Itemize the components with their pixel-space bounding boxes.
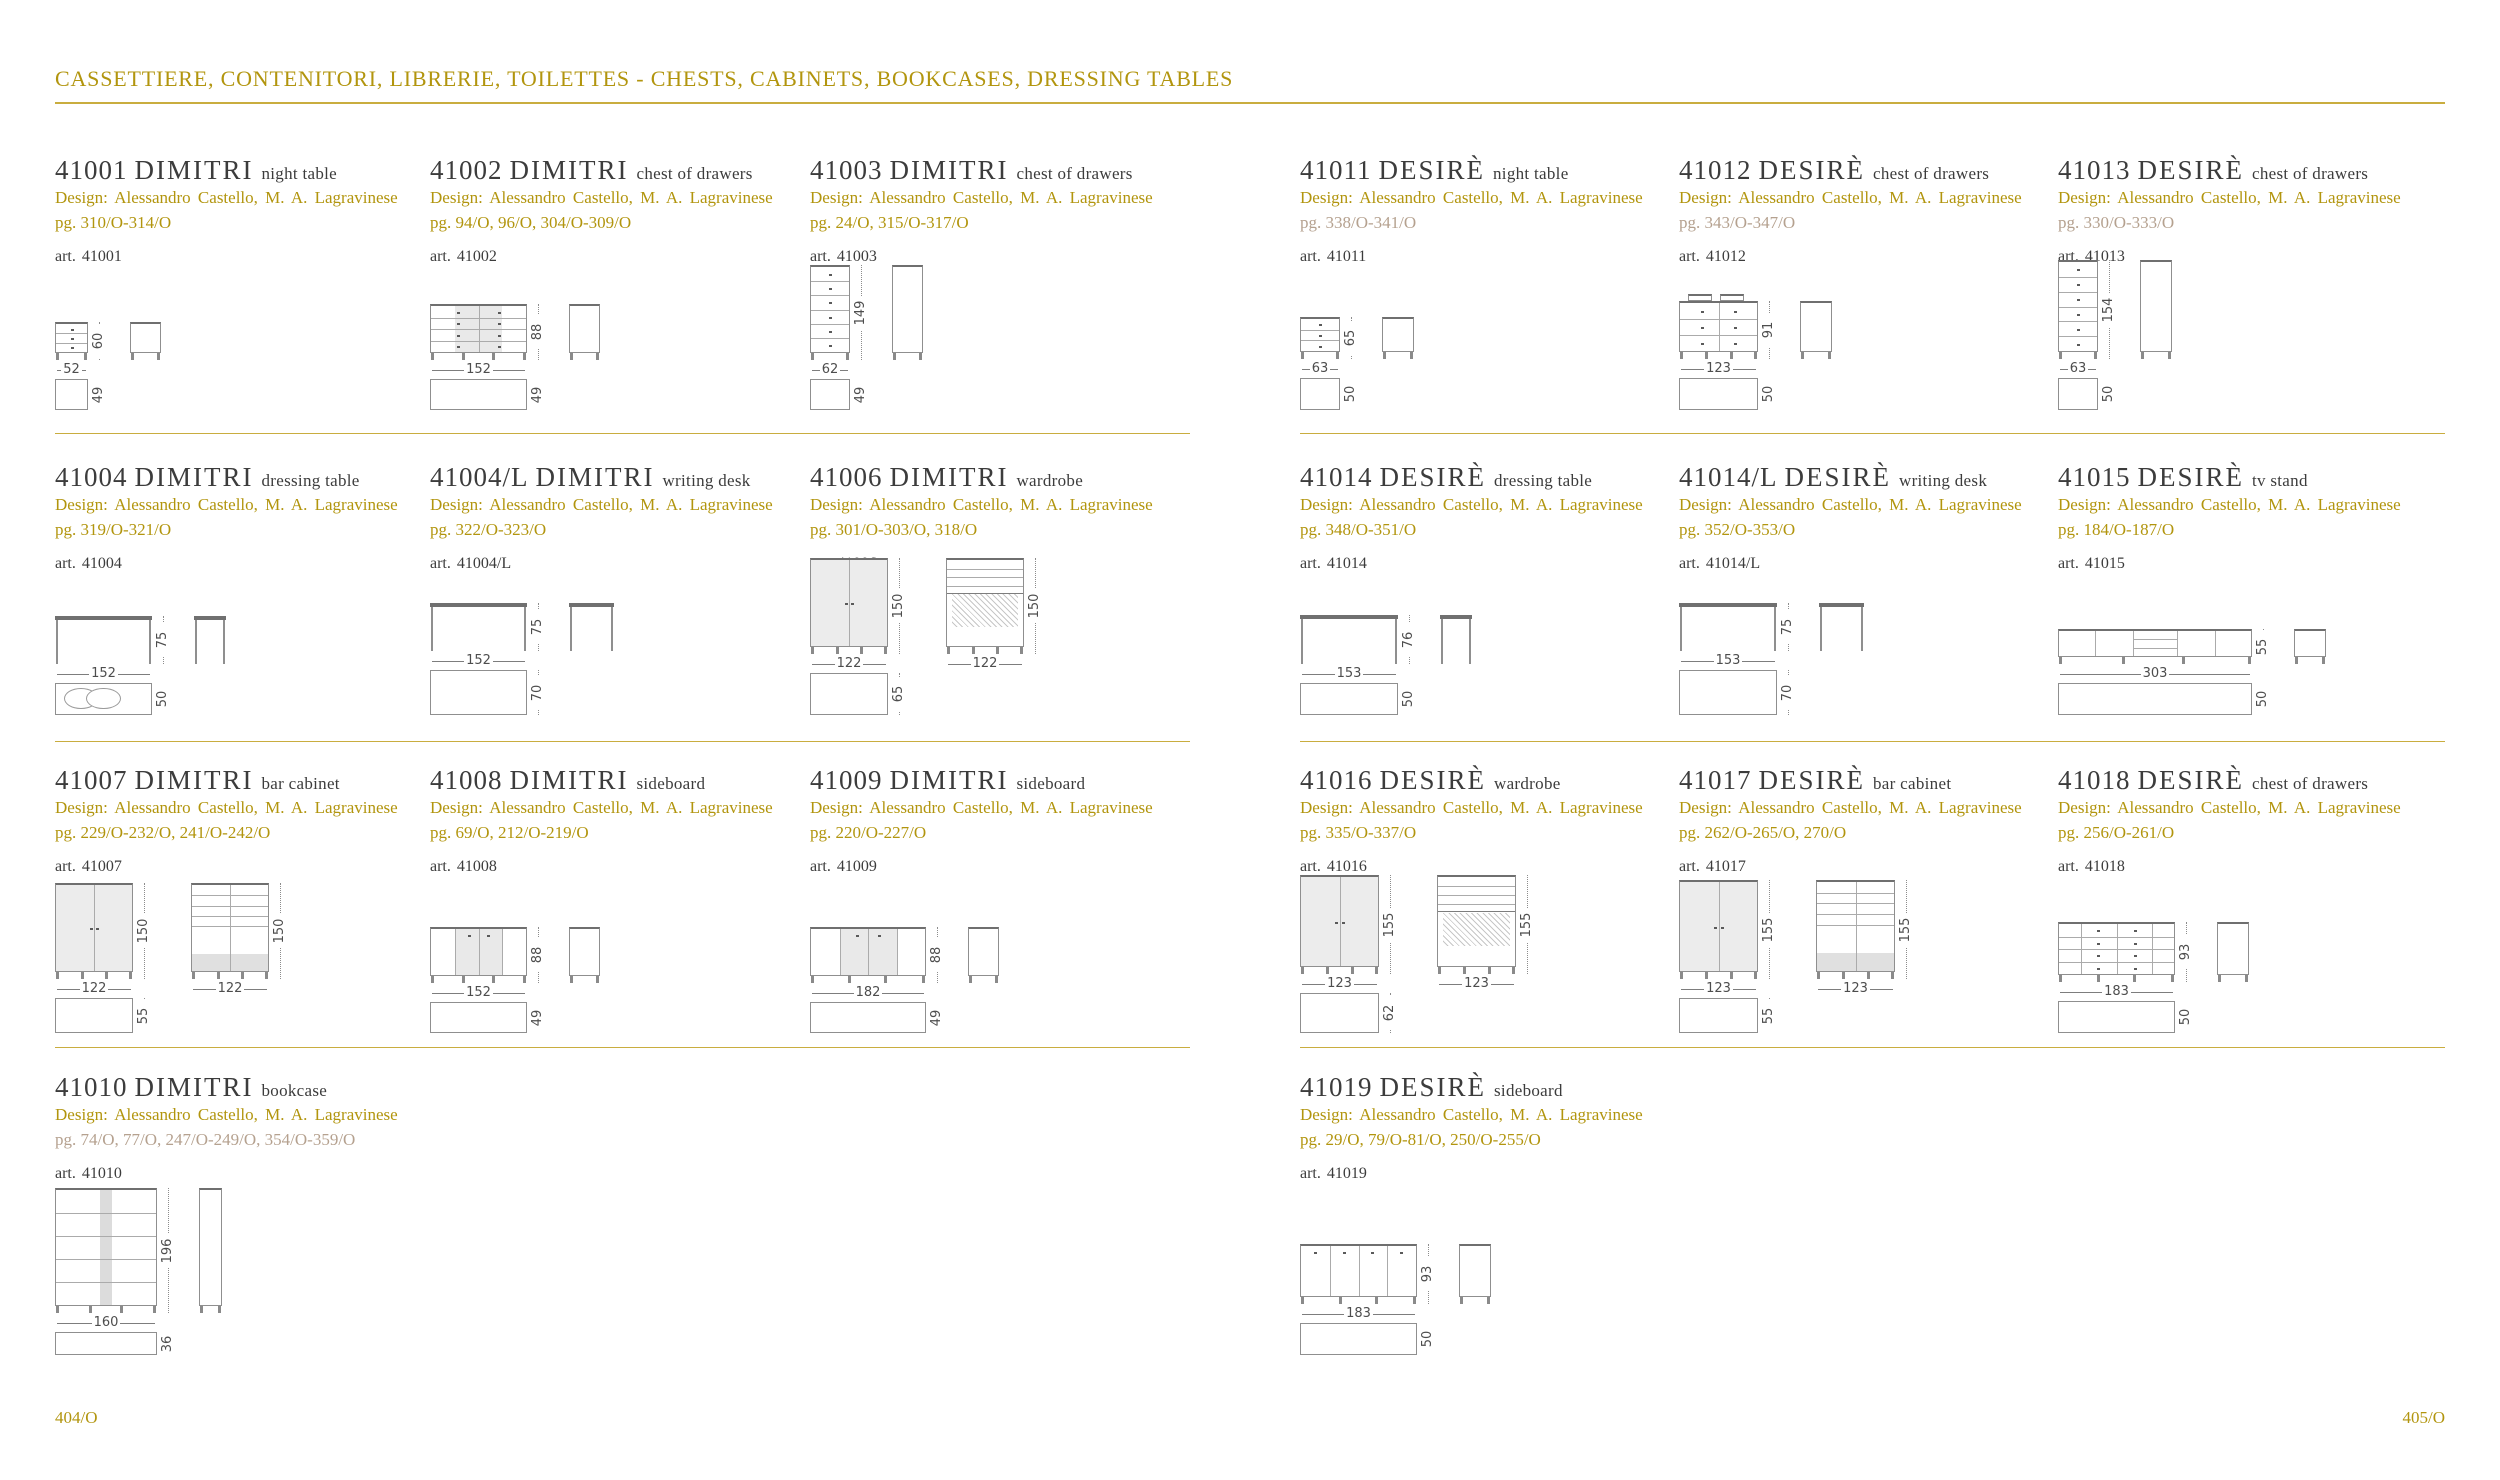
furniture-leg	[884, 647, 887, 654]
furniture-leg	[2059, 657, 2062, 664]
drawer-knob	[2077, 344, 2080, 346]
table-leg	[1469, 619, 1471, 664]
technical-drawing: 15515512312362	[1300, 733, 1645, 1033]
furniture-leg	[893, 353, 896, 360]
furniture-leg	[947, 647, 950, 654]
dim-height-label: 75	[156, 623, 170, 657]
furniture-leg	[462, 976, 465, 983]
drawer-line	[2059, 292, 2097, 293]
drawer-knob	[457, 312, 460, 314]
dim-height-label: 50	[2256, 682, 2270, 716]
drawer-line	[2059, 277, 2097, 278]
furniture-leg	[105, 972, 108, 979]
front-view	[810, 265, 850, 353]
drawer-knob	[1335, 922, 1338, 924]
divider-line	[897, 929, 898, 975]
front-view	[1679, 301, 1758, 352]
top-view	[1300, 993, 1379, 1033]
drawer-knob	[71, 329, 74, 331]
furniture-leg	[570, 976, 573, 983]
divider-line	[1719, 882, 1720, 971]
hanging-clothes	[1443, 913, 1511, 947]
furniture-leg	[811, 353, 814, 360]
drawer-line	[811, 338, 849, 339]
furniture-leg	[192, 972, 195, 979]
product-cell-41017: 41017DESIRÈbar cabinet Design: Alessandr…	[1679, 765, 2051, 1065]
dim-width-label: 122	[55, 982, 133, 996]
mirror-oval	[86, 688, 120, 709]
table-leg	[524, 607, 526, 651]
drawer-knob	[829, 345, 832, 347]
product-cell-41014-L: 41014/LDESIRÈwriting desk Design: Alessa…	[1679, 462, 2051, 762]
furniture-leg	[1680, 972, 1683, 979]
front-view	[130, 322, 161, 353]
divider-line	[94, 885, 95, 971]
dim-width-label: 123	[1679, 362, 1758, 376]
row-separator-rule	[55, 433, 1190, 434]
divider-line	[2215, 631, 2216, 656]
dim-width-label: 122	[810, 657, 888, 671]
divider-line	[1340, 877, 1341, 966]
table-leg	[1301, 619, 1303, 664]
divider-line	[479, 306, 480, 352]
dim-height-label: 93	[2179, 935, 2193, 969]
drawer-knob	[2097, 968, 2100, 970]
drawer-knob	[2134, 955, 2137, 957]
drawer-knob	[2077, 269, 2080, 271]
shelf-line	[1438, 886, 1515, 887]
dim-height-label: 155	[1383, 908, 1397, 942]
table-leg	[149, 620, 151, 664]
furniture-leg	[84, 353, 87, 360]
technical-drawing: 15015012212265	[810, 415, 1155, 715]
technical-drawing: 5530350	[2058, 415, 2403, 715]
furniture-leg	[1730, 352, 1733, 359]
table-leg	[611, 607, 613, 651]
catalog-spread: CASSETTIERE, CONTENITORI, LIBRERIE, TOIL…	[0, 0, 2500, 1480]
drawer-knob	[829, 317, 832, 319]
furniture-leg	[1463, 967, 1466, 974]
drawer-knob	[1701, 327, 1704, 329]
drawer-knob	[2097, 955, 2100, 957]
dim-width-label: 52	[55, 363, 88, 377]
table-top	[55, 616, 152, 620]
furniture-leg	[1460, 1297, 1463, 1304]
center-column	[100, 1190, 112, 1305]
furniture-leg	[218, 1306, 221, 1313]
divider-line	[1387, 1246, 1388, 1296]
technical-drawing: 8818249	[810, 733, 1155, 1033]
top-view	[1300, 683, 1398, 715]
furniture-leg	[2171, 975, 2174, 982]
furniture-leg	[1301, 967, 1304, 974]
furniture-leg	[2133, 975, 2136, 982]
drawer-knob	[1714, 927, 1717, 929]
front-view	[55, 883, 133, 972]
shelf-line	[1438, 895, 1515, 896]
drawer-knob	[829, 302, 832, 304]
drawer-line	[2059, 307, 2097, 308]
drawer-line	[2059, 937, 2174, 938]
furniture-leg	[431, 976, 434, 983]
side-view	[1819, 603, 1864, 651]
dim-height-label: 70	[531, 676, 545, 710]
furniture-leg	[848, 976, 851, 983]
top-view	[55, 1332, 157, 1355]
drawer-line	[56, 343, 87, 344]
front-view	[1382, 317, 1414, 352]
page-number-left: 404/O	[55, 1408, 98, 1428]
furniture-leg	[996, 647, 999, 654]
front-view	[1437, 875, 1516, 967]
front-view	[1459, 1244, 1491, 1297]
page-title: CASSETTIERE, CONTENITORI, LIBRERIE, TOIL…	[55, 66, 1233, 92]
table-leg	[1680, 607, 1682, 651]
furniture-leg	[2094, 352, 2097, 359]
dim-height-label: 76	[1402, 623, 1416, 657]
drawer-line	[811, 310, 849, 311]
dim-height-label: 65	[892, 677, 906, 711]
drawer-knob	[1342, 922, 1345, 924]
top-view	[55, 683, 152, 715]
furniture-leg	[1754, 352, 1757, 359]
furniture-leg	[56, 353, 59, 360]
dim-height-label: 49	[531, 1001, 545, 1035]
top-view	[1300, 378, 1340, 410]
front-view	[810, 558, 888, 647]
drawer-knob	[1371, 1252, 1374, 1254]
furniture-leg	[2182, 657, 2185, 664]
row-separator-rule	[1300, 1047, 2445, 1048]
dim-height-label: 155	[1899, 913, 1913, 947]
front-view	[2294, 629, 2326, 657]
crown-box	[1688, 294, 1712, 301]
drawer-line	[56, 333, 87, 334]
divider-line	[1330, 1246, 1331, 1296]
furniture-leg	[241, 972, 244, 979]
dim-height-label: 88	[531, 938, 545, 972]
dim-height-label: 65	[1344, 321, 1358, 355]
furniture-leg	[157, 353, 160, 360]
furniture-leg	[2097, 975, 2100, 982]
front-view	[55, 1188, 157, 1306]
drawer-line	[1301, 340, 1339, 341]
front-view	[810, 927, 926, 976]
technical-drawing: 605249	[55, 110, 400, 410]
dim-height-label: 49	[930, 1001, 944, 1035]
furniture-leg	[596, 976, 599, 983]
product-cell-41013: 41013DESIRÈchest of drawers Design: Ales…	[2058, 155, 2430, 455]
product-cell-41007: 41007DIMITRIbar cabinet Design: Alessand…	[55, 765, 427, 1065]
table-leg	[223, 620, 225, 664]
furniture-leg	[922, 976, 925, 983]
drawer-knob	[1319, 346, 1322, 348]
dim-height-label: 50	[2179, 1000, 2193, 1034]
dim-height-label: 50	[1762, 377, 1776, 411]
dim-height-label: 150	[273, 914, 287, 948]
furniture-leg	[1301, 1297, 1304, 1304]
dim-height-label: 50	[1421, 1322, 1435, 1356]
dim-height-label: 155	[1520, 908, 1534, 942]
dim-height-label: 55	[2256, 630, 2270, 664]
title-rule	[55, 102, 2445, 104]
dim-height-label: 75	[531, 610, 545, 644]
dim-height-label: 50	[1402, 682, 1416, 716]
front-view	[1300, 875, 1379, 967]
dim-width-label: 62	[810, 363, 850, 377]
technical-drawing: 9112350	[1679, 110, 2024, 410]
drawer-knob	[2077, 299, 2080, 301]
furniture-leg	[972, 647, 975, 654]
front-view	[946, 558, 1024, 647]
divider-line	[1359, 1246, 1360, 1296]
furniture-leg	[89, 1306, 92, 1313]
furniture-leg	[1828, 352, 1831, 359]
furniture-leg	[56, 1306, 59, 1313]
furniture-leg	[1680, 352, 1683, 359]
dim-height-label: 36	[161, 1327, 175, 1361]
technical-drawing: 7515250	[55, 415, 400, 715]
drawer-knob	[2097, 930, 2100, 932]
technical-drawing: 9318350	[1300, 1055, 1645, 1355]
furniture-leg	[1867, 972, 1870, 979]
table-leg	[1861, 607, 1863, 651]
shelf-line	[1438, 904, 1515, 905]
drawer-line	[811, 281, 849, 282]
furniture-leg	[1801, 352, 1804, 359]
dim-height-label: 155	[1762, 913, 1776, 947]
drawer-knob	[1701, 343, 1704, 345]
furniture-leg	[129, 972, 132, 979]
drawer-knob	[1734, 343, 1737, 345]
furniture-leg	[120, 1306, 123, 1313]
drawer-knob	[856, 935, 859, 937]
front-view	[55, 616, 152, 664]
product-cell-41002: 41002DIMITRIchest of drawers Design: Ale…	[430, 155, 802, 455]
dim-width-label: 123	[1300, 977, 1379, 991]
table-top	[430, 603, 527, 607]
table-top	[1440, 615, 1472, 619]
furniture-leg	[492, 976, 495, 983]
divider-line	[849, 560, 850, 646]
table-leg	[570, 607, 572, 651]
dim-height-label: 75	[1781, 610, 1795, 644]
drawer-knob	[457, 346, 460, 348]
drawer-knob	[845, 603, 848, 605]
furniture-leg	[523, 976, 526, 983]
dim-height-label: 88	[930, 938, 944, 972]
table-leg	[431, 607, 433, 651]
dim-height-label: 50	[156, 682, 170, 716]
dim-height-label: 154	[2102, 293, 2116, 327]
product-cell-41011: 41011DESIRÈnight table Design: Alessandr…	[1300, 155, 1672, 455]
top-view	[1679, 998, 1758, 1033]
row-separator-rule	[55, 1047, 1190, 1048]
drawer-knob	[96, 928, 99, 930]
technical-drawing: 9318350	[2058, 733, 2403, 1033]
furniture-leg	[1512, 967, 1515, 974]
shelf-line	[947, 586, 1023, 587]
furniture-leg	[846, 353, 849, 360]
furniture-leg	[2248, 657, 2251, 664]
furniture-leg	[2218, 975, 2221, 982]
drawer-knob	[90, 928, 93, 930]
furniture-leg	[462, 353, 465, 360]
side-view	[194, 616, 226, 664]
front-view	[892, 265, 923, 353]
drawer-line	[2133, 639, 2177, 640]
top-view	[810, 379, 850, 410]
furniture-leg	[153, 1306, 156, 1313]
furniture-leg	[200, 1306, 203, 1313]
dim-width-label: 122	[191, 982, 269, 996]
front-view	[2058, 922, 2175, 975]
drawer-knob	[487, 935, 490, 937]
product-cell-41010: 41010DIMITRIbookcase Design: Alessandro …	[55, 1072, 427, 1372]
technical-drawing: 1496249	[810, 110, 1155, 410]
divider-line	[455, 929, 456, 975]
dim-width-label: 152	[430, 363, 527, 377]
technical-drawing: 7515370	[1679, 415, 2024, 715]
furniture-leg	[217, 972, 220, 979]
divider-line	[840, 929, 841, 975]
divider-line	[1719, 303, 1720, 351]
furniture-leg	[265, 972, 268, 979]
front-view	[1816, 880, 1895, 972]
drawer-knob	[2077, 314, 2080, 316]
front-view	[430, 304, 527, 353]
drawer-knob	[829, 274, 832, 276]
technical-drawing: 8815249	[430, 110, 775, 410]
furniture-leg	[2059, 975, 2062, 982]
furniture-leg	[1383, 352, 1386, 359]
table-leg	[1820, 607, 1822, 651]
product-cell-41014: 41014DESIRÈdressing table Design: Alessa…	[1300, 462, 1672, 762]
top-view	[430, 379, 527, 410]
furniture-leg	[1301, 352, 1304, 359]
row-separator-rule	[55, 741, 1190, 742]
front-view	[55, 322, 88, 353]
technical-drawing: 1546350	[2058, 110, 2403, 410]
dim-height-label: 55	[1762, 999, 1776, 1033]
front-view	[1300, 317, 1340, 352]
divider-line	[2133, 631, 2134, 656]
technical-drawing: 7515270	[430, 415, 775, 715]
furniture-leg	[56, 972, 59, 979]
technical-drawing: 8815249	[430, 733, 775, 1033]
dim-width-label: 123	[1679, 982, 1758, 996]
drawer-knob	[2097, 943, 2100, 945]
shelf-line	[947, 569, 1023, 570]
dim-height-label: 55	[137, 999, 151, 1033]
top-view	[2058, 683, 2252, 715]
furniture-leg	[431, 353, 434, 360]
table-top	[1300, 615, 1398, 619]
dim-height-label: 150	[137, 914, 151, 948]
front-view	[1800, 301, 1832, 352]
front-view	[1300, 1244, 1417, 1297]
furniture-leg	[811, 647, 814, 654]
product-cell-41016: 41016DESIRÈwardrobe Design: Alessandro C…	[1300, 765, 1672, 1065]
dim-height-label: 50	[2102, 377, 2116, 411]
dim-height-label: 49	[854, 378, 868, 412]
technical-drawing: 15515512312355	[1679, 733, 2024, 1033]
drawer-knob	[457, 335, 460, 337]
furniture-leg	[1375, 967, 1378, 974]
dim-width-label: 63	[1300, 362, 1340, 376]
front-view	[2058, 629, 2252, 657]
top-view	[810, 1002, 926, 1033]
furniture-leg	[1438, 967, 1441, 974]
drawer-knob	[498, 323, 501, 325]
furniture-leg	[2168, 352, 2171, 359]
table-top	[1679, 603, 1777, 607]
furniture-leg	[811, 976, 814, 983]
furniture-leg	[1410, 352, 1413, 359]
furniture-leg	[523, 353, 526, 360]
top-view	[55, 379, 88, 410]
dim-width-label: 183	[2058, 985, 2175, 999]
drawer-knob	[2077, 284, 2080, 286]
top-view	[430, 670, 527, 715]
drawer-line	[2059, 321, 2097, 322]
drawer-knob	[1319, 335, 1322, 337]
furniture-leg	[2141, 352, 2144, 359]
drawer-knob	[829, 331, 832, 333]
furniture-leg	[1488, 967, 1491, 974]
drawer-knob	[2077, 329, 2080, 331]
dim-width-label: 152	[55, 667, 152, 681]
front-view	[1679, 880, 1758, 972]
table-leg	[195, 620, 197, 664]
dim-width-label: 123	[1437, 977, 1516, 991]
table-top	[1819, 603, 1864, 607]
table-top	[194, 616, 226, 620]
drawer-knob	[468, 935, 471, 937]
divider-line	[2177, 631, 2178, 656]
front-view	[1679, 603, 1777, 651]
divider-line	[230, 885, 231, 971]
product-cell-41004: 41004DIMITRIdressing table Design: Aless…	[55, 462, 427, 762]
furniture-leg	[2322, 657, 2325, 664]
furniture-leg	[81, 972, 84, 979]
technical-drawing: 656350	[1300, 110, 1645, 410]
top-view	[430, 1002, 527, 1033]
furniture-leg	[1413, 1297, 1416, 1304]
drawer-knob	[1343, 1252, 1346, 1254]
drawer-knob	[829, 288, 832, 290]
top-view	[2058, 378, 2098, 410]
furniture-leg	[1020, 647, 1023, 654]
divider-line	[868, 929, 869, 975]
table-leg	[56, 620, 58, 664]
drawer-knob	[1734, 311, 1737, 313]
dim-width-label: 152	[430, 654, 527, 668]
front-view	[430, 927, 527, 976]
drawer-line	[56, 1259, 156, 1260]
dim-height-label: 93	[1421, 1257, 1435, 1291]
side-view	[569, 603, 614, 651]
row-separator-rule	[1300, 433, 2445, 434]
top-view	[55, 998, 133, 1033]
furniture-leg	[919, 353, 922, 360]
front-view	[2058, 260, 2098, 352]
drawer-knob	[1314, 1252, 1317, 1254]
product-cell-41019: 41019DESIRÈsideboard Design: Alessandro …	[1300, 1072, 1672, 1372]
top-view	[1300, 1323, 1417, 1355]
drawer-knob	[457, 323, 460, 325]
top-view	[1679, 670, 1777, 715]
